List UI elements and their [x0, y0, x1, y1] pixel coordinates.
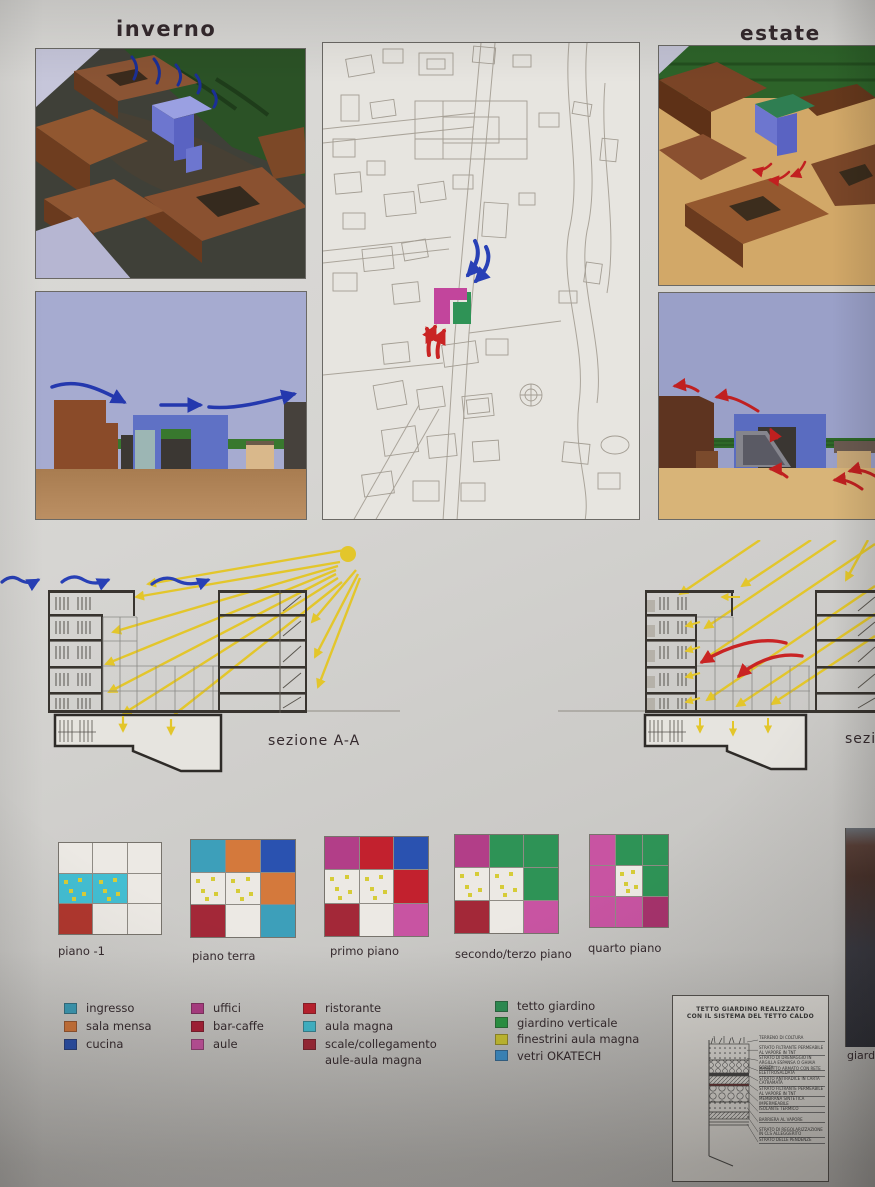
legend-label: sala mensa	[86, 1019, 152, 1033]
legend-swatch	[64, 1021, 77, 1032]
legend-item: ristorante	[303, 999, 437, 1017]
summer-elevation-render	[658, 292, 875, 520]
legend-swatch	[303, 1021, 316, 1032]
floor-plan-quarto-piano	[589, 834, 669, 928]
legend-swatch	[303, 1003, 316, 1014]
plan-cell	[360, 904, 394, 936]
roof-layer-label: ISOLANTE TERMICO	[759, 1107, 825, 1113]
legend-swatch	[191, 1039, 204, 1050]
legend-item: aula magna	[303, 1017, 437, 1035]
plan-label: piano terra	[192, 949, 255, 963]
plan-cell	[394, 837, 428, 869]
sun-icon	[340, 546, 356, 562]
plan-cell	[616, 866, 641, 896]
winter-elevation-render	[35, 291, 307, 520]
legend-item: sala mensa	[64, 1017, 152, 1035]
plan-cell	[325, 870, 359, 902]
summer-aerial-scene	[659, 46, 875, 286]
plan-cell	[394, 870, 428, 902]
plan-cell	[59, 843, 92, 873]
legend-column-4: tetto giardinogiardino verticalefinestri…	[495, 998, 639, 1064]
plan-cell	[325, 837, 359, 869]
plan-cell	[59, 874, 92, 904]
plan-cell	[616, 897, 641, 927]
plan-cell	[455, 901, 489, 933]
plan-cell	[191, 873, 225, 905]
plan-cell	[191, 905, 225, 937]
legend-item: scale/collegamento	[303, 1035, 437, 1053]
summer-aerial-render	[658, 45, 875, 286]
roof-layer-label: TERRENO DI COLTURA	[759, 1036, 825, 1042]
legend-item: giardino verticale	[495, 1015, 639, 1032]
legend-swatch	[495, 1001, 508, 1012]
legend-item: cucina	[64, 1035, 152, 1053]
legend-label: cucina	[86, 1037, 123, 1051]
plan-cell	[59, 904, 92, 934]
giardino-verticale-caption: giardino verticale	[847, 1049, 875, 1062]
plan-cell	[261, 905, 295, 937]
plan-cell	[226, 873, 260, 905]
stairs	[858, 597, 875, 708]
plan-cell	[524, 901, 558, 933]
plan-cell	[643, 897, 668, 927]
legend-column-1: ingressosala mensacucina	[64, 999, 152, 1053]
plan-cell	[93, 874, 126, 904]
legend-item: vetri OKATECH	[495, 1048, 639, 1065]
plan-cell	[93, 904, 126, 934]
plan-cell	[191, 840, 225, 872]
winter-aerial-scene	[36, 49, 306, 279]
plan-cell	[128, 904, 161, 934]
building-sections-drawing	[0, 540, 875, 775]
plan-cell	[261, 873, 295, 905]
legend-swatch	[495, 1050, 508, 1061]
plan-cell	[226, 840, 260, 872]
floor-plan-piano-terra	[190, 839, 296, 938]
floor-plan-secondo-terzo-piano	[454, 834, 559, 934]
plan-cell	[490, 901, 524, 933]
summer-elevation-scene	[659, 293, 875, 520]
legend-item: ingresso	[64, 999, 152, 1017]
plan-label: piano -1	[58, 944, 105, 958]
legend-swatch	[64, 1003, 77, 1014]
floor-plan-piano-minus-1	[58, 842, 162, 935]
plan-cell	[226, 905, 260, 937]
plan-cell	[455, 868, 489, 900]
summer-sun-rays	[680, 540, 875, 706]
site-plan-map	[322, 42, 640, 520]
roof-detail-box: TETTO GIARDINO REALIZZATO CON IL SISTEMA…	[672, 995, 829, 1182]
legend-label: giardino verticale	[517, 1016, 618, 1030]
plan-cell	[590, 835, 615, 865]
basement	[645, 715, 806, 769]
plan-cell	[261, 840, 295, 872]
plan-cell	[93, 843, 126, 873]
plan-cell	[128, 843, 161, 873]
winter-title: inverno	[116, 17, 216, 41]
plan-cell	[524, 868, 558, 900]
legend-item: uffici	[191, 999, 264, 1017]
legend-label: uffici	[213, 1001, 241, 1015]
plan-cell	[616, 835, 641, 865]
legend-item: tetto giardino	[495, 998, 639, 1015]
plan-cell	[590, 897, 615, 927]
legend-column-3: ristoranteaula magnascale/collegamentoau…	[303, 999, 437, 1069]
legend-label: scale/collegamento	[325, 1037, 437, 1051]
section-aa-label: sezione A-A	[268, 733, 360, 749]
winter-elevation-scene	[36, 292, 307, 520]
plan-label: primo piano	[330, 944, 399, 958]
plan-cell	[490, 868, 524, 900]
plan-label: secondo/terzo piano	[455, 947, 572, 961]
legend-label: aula magna	[325, 1019, 393, 1033]
plan-cell	[455, 835, 489, 867]
site-plan-drawing	[323, 43, 640, 520]
giardino-verticale-photo	[845, 828, 875, 1047]
plan-cell	[360, 870, 394, 902]
summer-title: estate	[740, 21, 821, 45]
legend-label: ingresso	[86, 1001, 134, 1015]
floor-plan-primo-piano	[324, 836, 429, 937]
legend-label: bar-caffe	[213, 1019, 264, 1033]
plan-label: quarto piano	[588, 941, 661, 955]
poster-photo: inverno estate	[0, 0, 875, 1187]
roof-layer-label: BARRIERA AL VAPORE	[759, 1118, 825, 1124]
legend-swatch	[64, 1039, 77, 1050]
legend-swatch	[191, 1021, 204, 1032]
summer-section	[645, 540, 875, 769]
legend-swatch	[495, 1017, 508, 1028]
plan-cell	[360, 837, 394, 869]
legend-label: aule	[213, 1037, 238, 1051]
roof-stratigraphy: TERRENO DI COLTURASTRATO FILTRANTE PERME…	[673, 996, 830, 1183]
plan-cell	[643, 866, 668, 896]
legend-label: vetri OKATECH	[517, 1049, 601, 1063]
winter-aerial-render	[35, 48, 306, 279]
legend-label: ristorante	[325, 1001, 381, 1015]
legend-swatch	[191, 1003, 204, 1014]
plan-cell	[590, 866, 615, 896]
legend-label-line2: aule-aula magna	[325, 1053, 437, 1069]
legend-column-2: ufficibar-caffeaule	[191, 999, 264, 1053]
legend-swatch	[495, 1034, 508, 1045]
legend-label: tetto giardino	[517, 999, 595, 1013]
legend-item: bar-caffe	[191, 1017, 264, 1035]
plan-cell	[524, 835, 558, 867]
section-right-label: sezione	[845, 731, 875, 747]
plan-cell	[394, 904, 428, 936]
winter-sun-rays	[106, 550, 360, 726]
legend-swatch	[303, 1039, 316, 1050]
legend-item: finestrini aula magna	[495, 1031, 639, 1048]
legend-label: finestrini aula magna	[517, 1032, 639, 1046]
legend-item: aule	[191, 1035, 264, 1053]
roof-layer-label: STRATO DELLE PENDENZE	[759, 1138, 825, 1144]
plan-cell	[643, 835, 668, 865]
plan-cell	[128, 874, 161, 904]
plan-cell	[490, 835, 524, 867]
plan-cell	[325, 904, 359, 936]
